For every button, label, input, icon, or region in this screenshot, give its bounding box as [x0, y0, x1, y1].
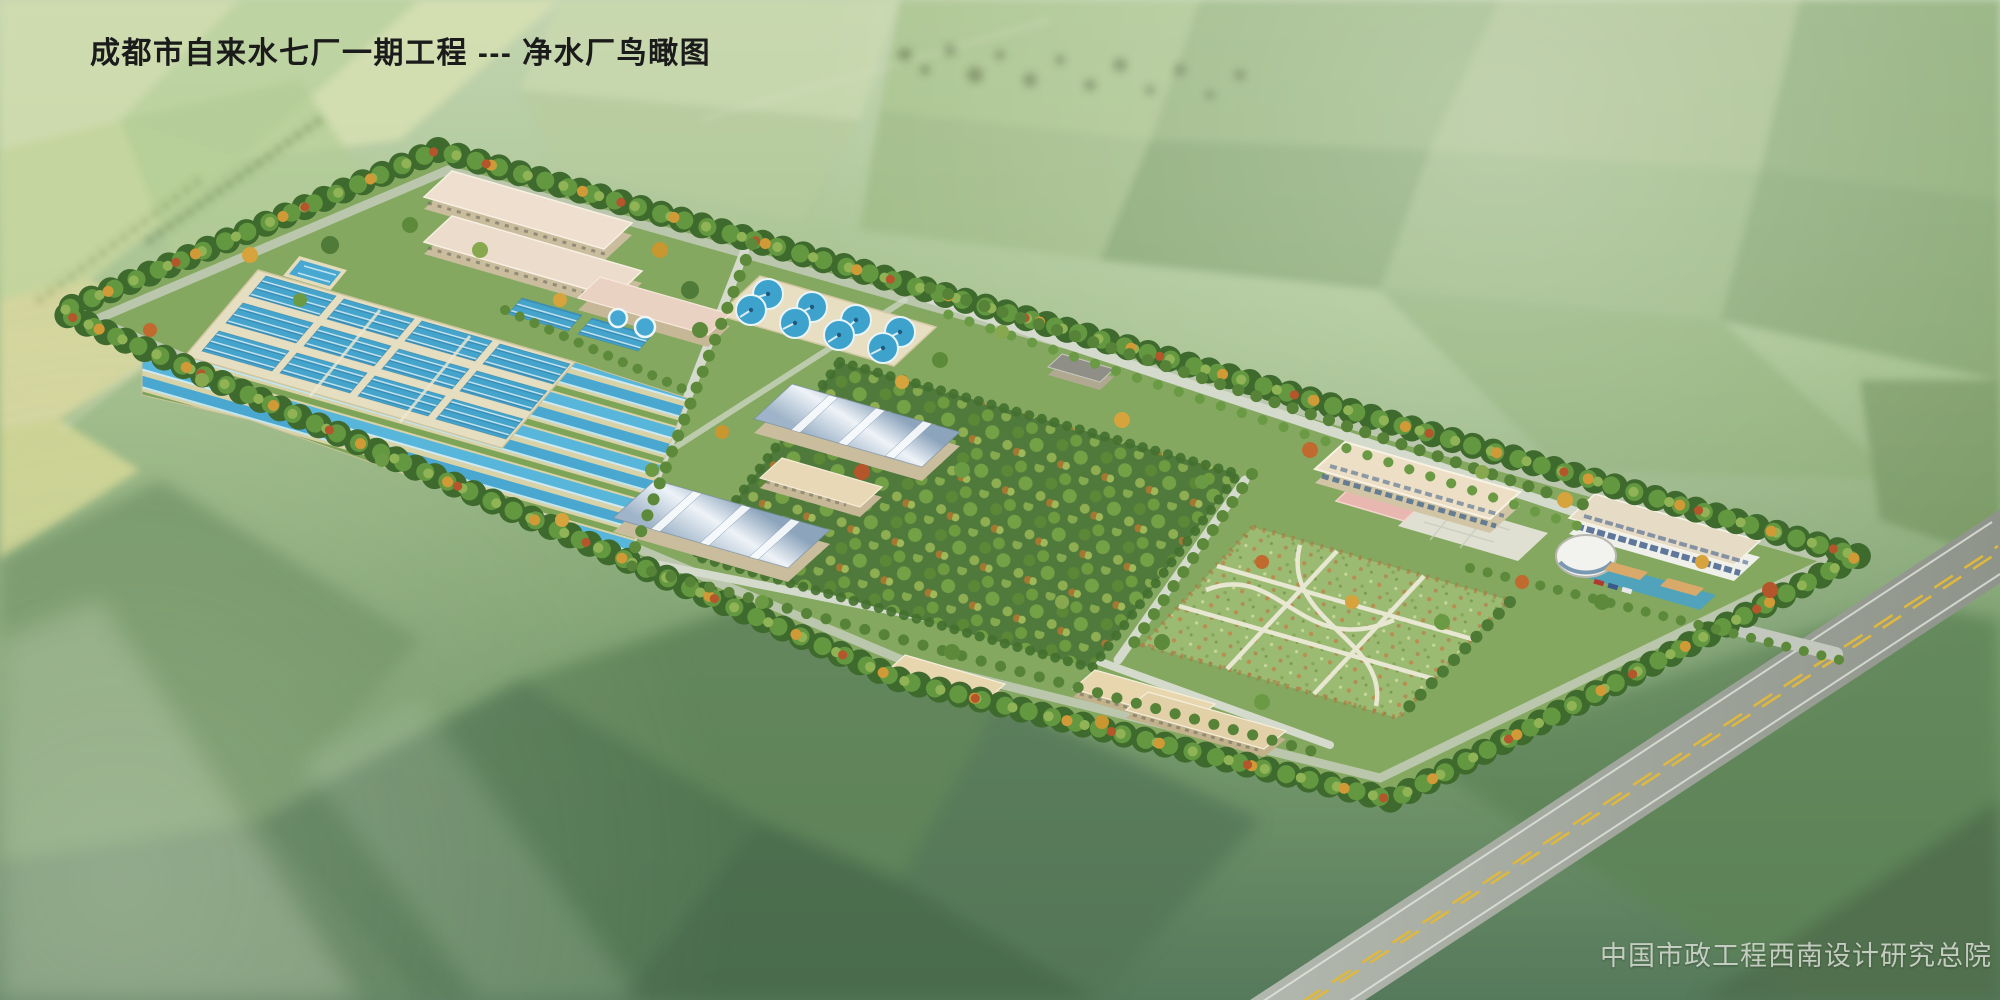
- clarifier: [868, 333, 898, 363]
- clarifier: [736, 295, 766, 325]
- round-tank: [609, 309, 627, 327]
- clarifier: [824, 320, 854, 350]
- rendering-canvas: 成都市自来水七厂一期工程 --- 净水厂鸟瞰图 中国市政工程西南设计研究总院: [0, 0, 2000, 1000]
- design-institute-credit: 中国市政工程西南设计研究总院: [1600, 934, 1992, 973]
- aerial-scene: [0, 0, 2000, 1000]
- drawing-title: 成都市自来水七厂一期工程 --- 净水厂鸟瞰图: [90, 28, 711, 72]
- round-tank: [635, 317, 655, 337]
- clarifier: [780, 308, 810, 338]
